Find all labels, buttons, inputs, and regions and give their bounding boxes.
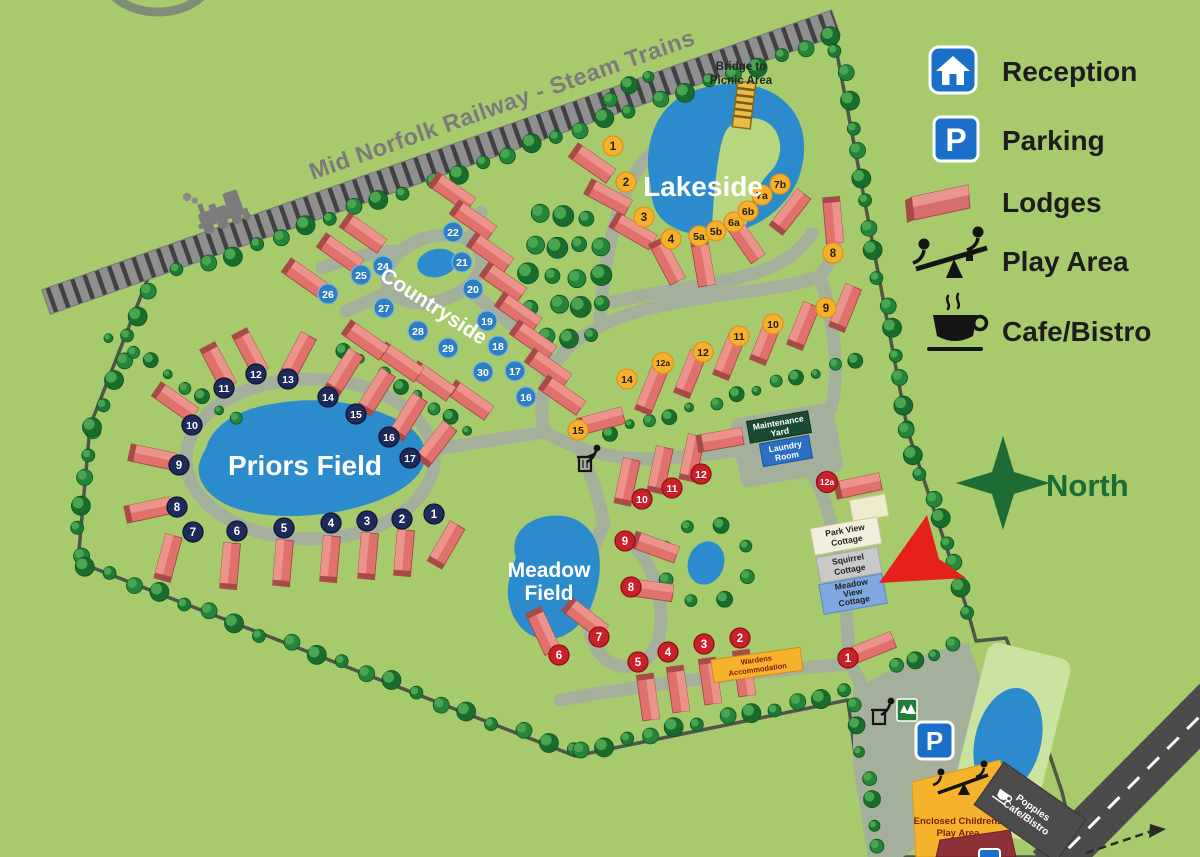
park-info-sign-icon (897, 699, 917, 721)
lodge-badge-priors_field: 12 (246, 364, 266, 384)
lodge-badge-priors_field: 15 (346, 404, 366, 424)
svg-text:27: 27 (378, 303, 390, 315)
lodge-badge-lakeside: 11 (729, 326, 749, 346)
lodge-badge-priors_field: 6 (227, 521, 247, 541)
svg-text:10: 10 (186, 420, 198, 432)
svg-text:6: 6 (234, 526, 240, 538)
lodge-badge-countryside: 22 (443, 222, 463, 242)
lodge-badge-priors_field: 3 (357, 511, 377, 531)
lodge-badge-countryside: 26 (318, 284, 338, 304)
svg-text:2: 2 (623, 177, 629, 189)
svg-text:10: 10 (767, 319, 779, 331)
legend-reception-label: Reception (1002, 56, 1137, 87)
svg-text:9: 9 (823, 303, 829, 315)
svg-text:17: 17 (509, 366, 521, 378)
lodge-badge-priors_field: 16 (379, 427, 399, 447)
svg-text:2: 2 (737, 633, 743, 645)
priors-field-label: Priors Field (228, 450, 382, 481)
lodge-icon (273, 539, 294, 586)
svg-text:1: 1 (845, 653, 852, 665)
lodge-badge-lakeside: 12a (653, 353, 674, 374)
lodge-badge-meadow_field: 3 (694, 634, 714, 654)
svg-text:5: 5 (281, 523, 288, 535)
svg-text:3: 3 (364, 516, 370, 528)
lodge-badge-meadow_field: 9 (615, 531, 635, 551)
svg-text:12: 12 (695, 469, 707, 481)
parking-sign: P (916, 722, 953, 759)
svg-text:11: 11 (666, 483, 677, 495)
lodge-badge-meadow_field: 2 (730, 628, 750, 648)
svg-text:11: 11 (218, 383, 229, 395)
svg-text:16: 16 (383, 432, 395, 444)
lakeside-label: Lakeside (643, 171, 763, 202)
lodge-badge-countryside: 16 (516, 387, 536, 407)
lodge-badge-lakeside: 14 (617, 369, 637, 389)
park-map-canvas: Mid Norfolk Railway - Steam Trains (0, 0, 1200, 857)
svg-text:4: 4 (665, 647, 672, 659)
reception-sign (979, 849, 1000, 857)
svg-text:8: 8 (174, 502, 181, 514)
lodge-badge-priors_field: 11 (214, 378, 234, 398)
lodge-badge-meadow_field: 11 (662, 478, 682, 498)
lodge-badge-meadow_field: 12 (691, 464, 711, 484)
lodge-badge-priors_field: 10 (182, 415, 202, 435)
svg-text:14: 14 (621, 374, 633, 386)
svg-text:5b: 5b (710, 226, 722, 238)
legend-play-area-label: Play Area (1002, 246, 1129, 277)
svg-text:6a: 6a (728, 217, 740, 229)
lodge-badge-lakeside: 4 (661, 229, 681, 249)
lodge-badge-priors_field: 13 (278, 369, 298, 389)
svg-text:15: 15 (572, 425, 584, 437)
legend-parking-label: Parking (1002, 125, 1105, 156)
lodge-badge-lakeside: 9 (816, 298, 836, 318)
svg-text:12a: 12a (820, 477, 834, 487)
lodge-icon (220, 542, 241, 589)
holiday-park-map: Mid Norfolk Railway - Steam Trains (0, 0, 1200, 857)
svg-text:5: 5 (635, 657, 642, 669)
svg-text:4: 4 (328, 518, 335, 530)
lodge-badge-priors_field: 2 (392, 509, 412, 529)
play-area-label: Enclosed Childrens (914, 816, 1003, 827)
lodge-badge-countryside: 25 (351, 265, 371, 285)
svg-text:12a: 12a (656, 358, 670, 368)
lodge-badge-countryside: 28 (408, 321, 428, 341)
svg-text:6: 6 (556, 650, 562, 662)
svg-text:8: 8 (628, 582, 635, 594)
legend-lodges-label: Lodges (1002, 187, 1102, 218)
svg-text:8: 8 (830, 248, 837, 260)
svg-text:1: 1 (431, 509, 438, 521)
legend-cafe-label: Cafe/Bistro (1002, 316, 1151, 347)
bridge-label: Bridge to (716, 61, 766, 73)
svg-text:12: 12 (697, 347, 709, 359)
svg-text:5a: 5a (693, 231, 705, 243)
lodge-badge-priors_field: 17 (400, 448, 420, 468)
svg-text:22: 22 (447, 227, 459, 239)
svg-text:11: 11 (733, 331, 744, 343)
svg-text:4: 4 (668, 234, 675, 246)
lodge-badge-priors_field: 9 (169, 455, 189, 475)
svg-text:15: 15 (350, 409, 362, 421)
lodge-badge-countryside: 30 (473, 362, 493, 382)
lodge-icon (320, 535, 341, 582)
svg-text:16: 16 (520, 392, 532, 404)
svg-text:6b: 6b (742, 206, 754, 218)
lodge-badge-priors_field: 7 (183, 522, 203, 542)
svg-text:30: 30 (477, 367, 489, 379)
play-area-icon (919, 239, 930, 250)
svg-text:14: 14 (322, 392, 334, 404)
lodge-icon (358, 532, 379, 579)
lodge-badge-meadow_field: 5 (628, 652, 648, 672)
svg-text:13: 13 (282, 374, 294, 386)
lodge-badge-lakeside: 7b (770, 174, 790, 194)
north-label: North (1046, 468, 1129, 503)
lodge-badge-priors_field: 8 (167, 497, 187, 517)
lodge-badge-countryside: 20 (463, 279, 483, 299)
parking-sign-letter: P (926, 726, 943, 756)
lodge-badge-priors_field: 5 (274, 518, 294, 538)
lodge-badge-meadow_field: 10 (632, 489, 652, 509)
lodge-badge-meadow_field: 4 (658, 642, 678, 662)
lodge-badge-meadow_field: 1 (838, 648, 858, 668)
lodge-badge-countryside: 21 (452, 252, 472, 272)
svg-text:7: 7 (190, 527, 196, 539)
lodge-badge-lakeside: 8 (823, 243, 843, 263)
lodge-badge-meadow_field: 6 (549, 645, 569, 665)
svg-text:7b: 7b (774, 179, 786, 191)
svg-text:3: 3 (701, 639, 707, 651)
lodge-badge-lakeside: 6b (738, 201, 758, 221)
svg-text:29: 29 (442, 343, 454, 355)
lodge-badge-lakeside: 10 (763, 314, 783, 334)
svg-text:1: 1 (610, 141, 617, 153)
lodge-badge-lakeside: 3 (634, 207, 654, 227)
svg-text:28: 28 (412, 326, 424, 338)
svg-text:9: 9 (622, 536, 628, 548)
svg-text:9: 9 (176, 460, 182, 472)
lodge-badge-lakeside: 15 (568, 420, 588, 440)
svg-text:20: 20 (467, 284, 479, 296)
lodge-badge-meadow_field: 12a (817, 472, 838, 493)
bridge-label2: Picnic Area (710, 75, 773, 87)
lodge-badge-lakeside: 2 (616, 172, 636, 192)
lodge-badge-countryside: 17 (505, 361, 525, 381)
lodge-badge-meadow_field: 7 (589, 627, 609, 647)
svg-text:26: 26 (322, 289, 334, 301)
lodge-badge-lakeside: 12 (693, 342, 713, 362)
parking-icon-letter: P (945, 122, 966, 158)
svg-text:17: 17 (404, 453, 416, 465)
lodge-icon (394, 529, 415, 576)
svg-text:3: 3 (641, 212, 647, 224)
svg-text:12: 12 (250, 369, 262, 381)
svg-text:2: 2 (399, 514, 405, 526)
lodge-badge-countryside: 18 (488, 336, 508, 356)
lodge-icon (823, 196, 844, 243)
lodge-badge-countryside: 29 (438, 338, 458, 358)
svg-text:18: 18 (492, 341, 504, 353)
lodge-badge-priors_field: 4 (321, 513, 341, 533)
svg-text:25: 25 (355, 270, 367, 282)
svg-text:7: 7 (596, 632, 602, 644)
meadow-field-label: Meadow (508, 559, 592, 582)
lodge-badge-lakeside: 5b (706, 221, 726, 241)
svg-text:10: 10 (636, 494, 648, 506)
lodge-badge-countryside: 27 (374, 298, 394, 318)
meadow-field-label2: Field (524, 582, 573, 605)
lodge-badge-priors_field: 1 (424, 504, 444, 524)
svg-text:21: 21 (456, 257, 468, 269)
lodge-badge-lakeside: 1 (603, 136, 623, 156)
lodge-badge-priors_field: 14 (318, 387, 338, 407)
lodge-badge-meadow_field: 8 (621, 577, 641, 597)
